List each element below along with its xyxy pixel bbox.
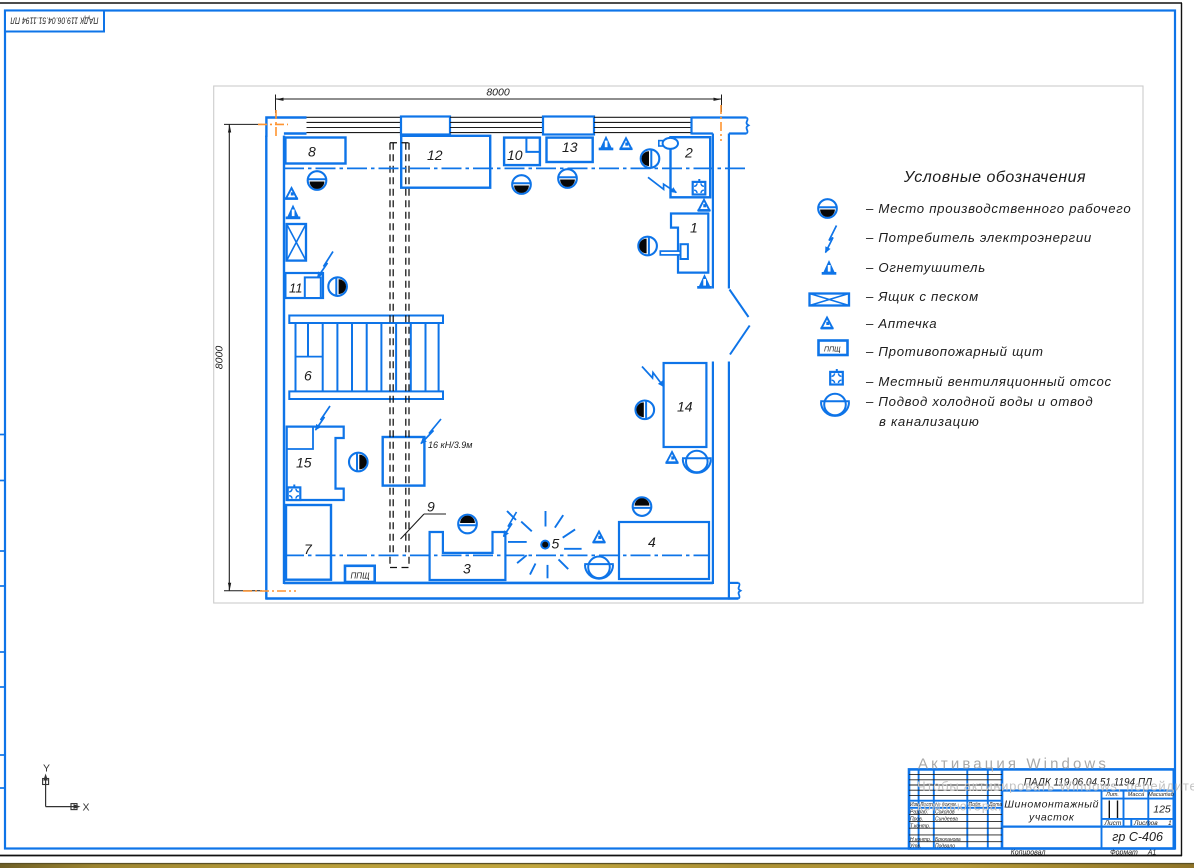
svg-text:Y: Y — [43, 763, 50, 775]
svg-text:Копировал: Копировал — [1011, 850, 1046, 857]
svg-text:Активация Windows: Активация Windows — [918, 756, 1109, 773]
svg-text:X: X — [83, 802, 90, 814]
svg-text:5: 5 — [552, 536, 560, 552]
svg-text:ППЩ: ППЩ — [351, 571, 371, 580]
svg-text:Шиномонтажный: Шиномонтажный — [1004, 799, 1099, 811]
svg-text:Формат: Формат — [1110, 850, 1138, 857]
svg-text:125: 125 — [1153, 804, 1171, 816]
svg-text:9: 9 — [427, 499, 435, 515]
svg-text:6: 6 — [304, 368, 312, 384]
svg-text:– Подвод холодной воды и отвод: – Подвод холодной воды и отвод — [865, 394, 1093, 409]
svg-text:1: 1 — [1168, 820, 1172, 827]
svg-text:Условные обозначения: Условные обозначения — [903, 169, 1086, 186]
svg-text:8000: 8000 — [214, 346, 226, 370]
svg-text:Подвало: Подвало — [935, 844, 955, 850]
svg-text:ППЩ: ППЩ — [824, 347, 841, 354]
svg-text:12: 12 — [427, 147, 443, 163]
svg-text:Синдеева: Синдеева — [935, 817, 958, 823]
svg-text:Лист: Лист — [1104, 820, 1122, 827]
svg-text:13: 13 — [562, 139, 578, 155]
svg-text:– Потребитель электроэнергии: – Потребитель электроэнергии — [865, 230, 1092, 245]
svg-text:в канализацию: в канализацию — [879, 414, 980, 429]
svg-text:15: 15 — [296, 455, 312, 471]
svg-text:14: 14 — [677, 399, 693, 415]
svg-text:– Место производственного рабо: – Место производственного рабочего — [865, 201, 1131, 216]
svg-text:10: 10 — [507, 147, 523, 163]
svg-text:гр С-406: гр С-406 — [1112, 830, 1163, 844]
svg-text:16 кН/3.9м: 16 кН/3.9м — [428, 440, 472, 450]
svg-text:Н.контр.: Н.контр. — [910, 837, 931, 843]
svg-text:8000: 8000 — [486, 87, 510, 99]
svg-text:11: 11 — [289, 281, 303, 296]
svg-text:4: 4 — [648, 534, 656, 550]
svg-text:Брюханова: Брюханова — [935, 837, 961, 843]
svg-text:3: 3 — [463, 561, 471, 577]
svg-text:8: 8 — [308, 144, 316, 160]
svg-text:участок: участок — [1028, 812, 1075, 824]
svg-text:– Местный вентиляционный отсос: – Местный вентиляционный отсос — [865, 374, 1112, 389]
svg-text:2: 2 — [684, 145, 693, 161]
svg-text:– Ящик с песком: – Ящик с песком — [865, 289, 979, 304]
svg-text:– Противопожарный щит: – Противопожарный щит — [865, 344, 1044, 359]
svg-text:Пров.: Пров. — [910, 817, 923, 823]
svg-text:Листов: Листов — [1133, 820, 1158, 827]
svg-text:компьютера.: компьютера. — [917, 799, 1002, 814]
svg-text:Утв.: Утв. — [910, 844, 921, 850]
svg-text:– Аптечка: – Аптечка — [865, 316, 937, 331]
svg-text:1: 1 — [690, 220, 698, 236]
svg-text:Т.контр.: Т.контр. — [910, 823, 930, 829]
svg-text:А1: А1 — [1147, 850, 1157, 857]
svg-text:– Огнетушитель: – Огнетушитель — [865, 260, 986, 275]
svg-text:Чтобы активировать Windows, пе: Чтобы активировать Windows, перейдите в … — [917, 779, 1194, 794]
svg-text:ПАДК 119.06.04.51.1194 ПЛ: ПАДК 119.06.04.51.1194 ПЛ — [10, 15, 99, 25]
